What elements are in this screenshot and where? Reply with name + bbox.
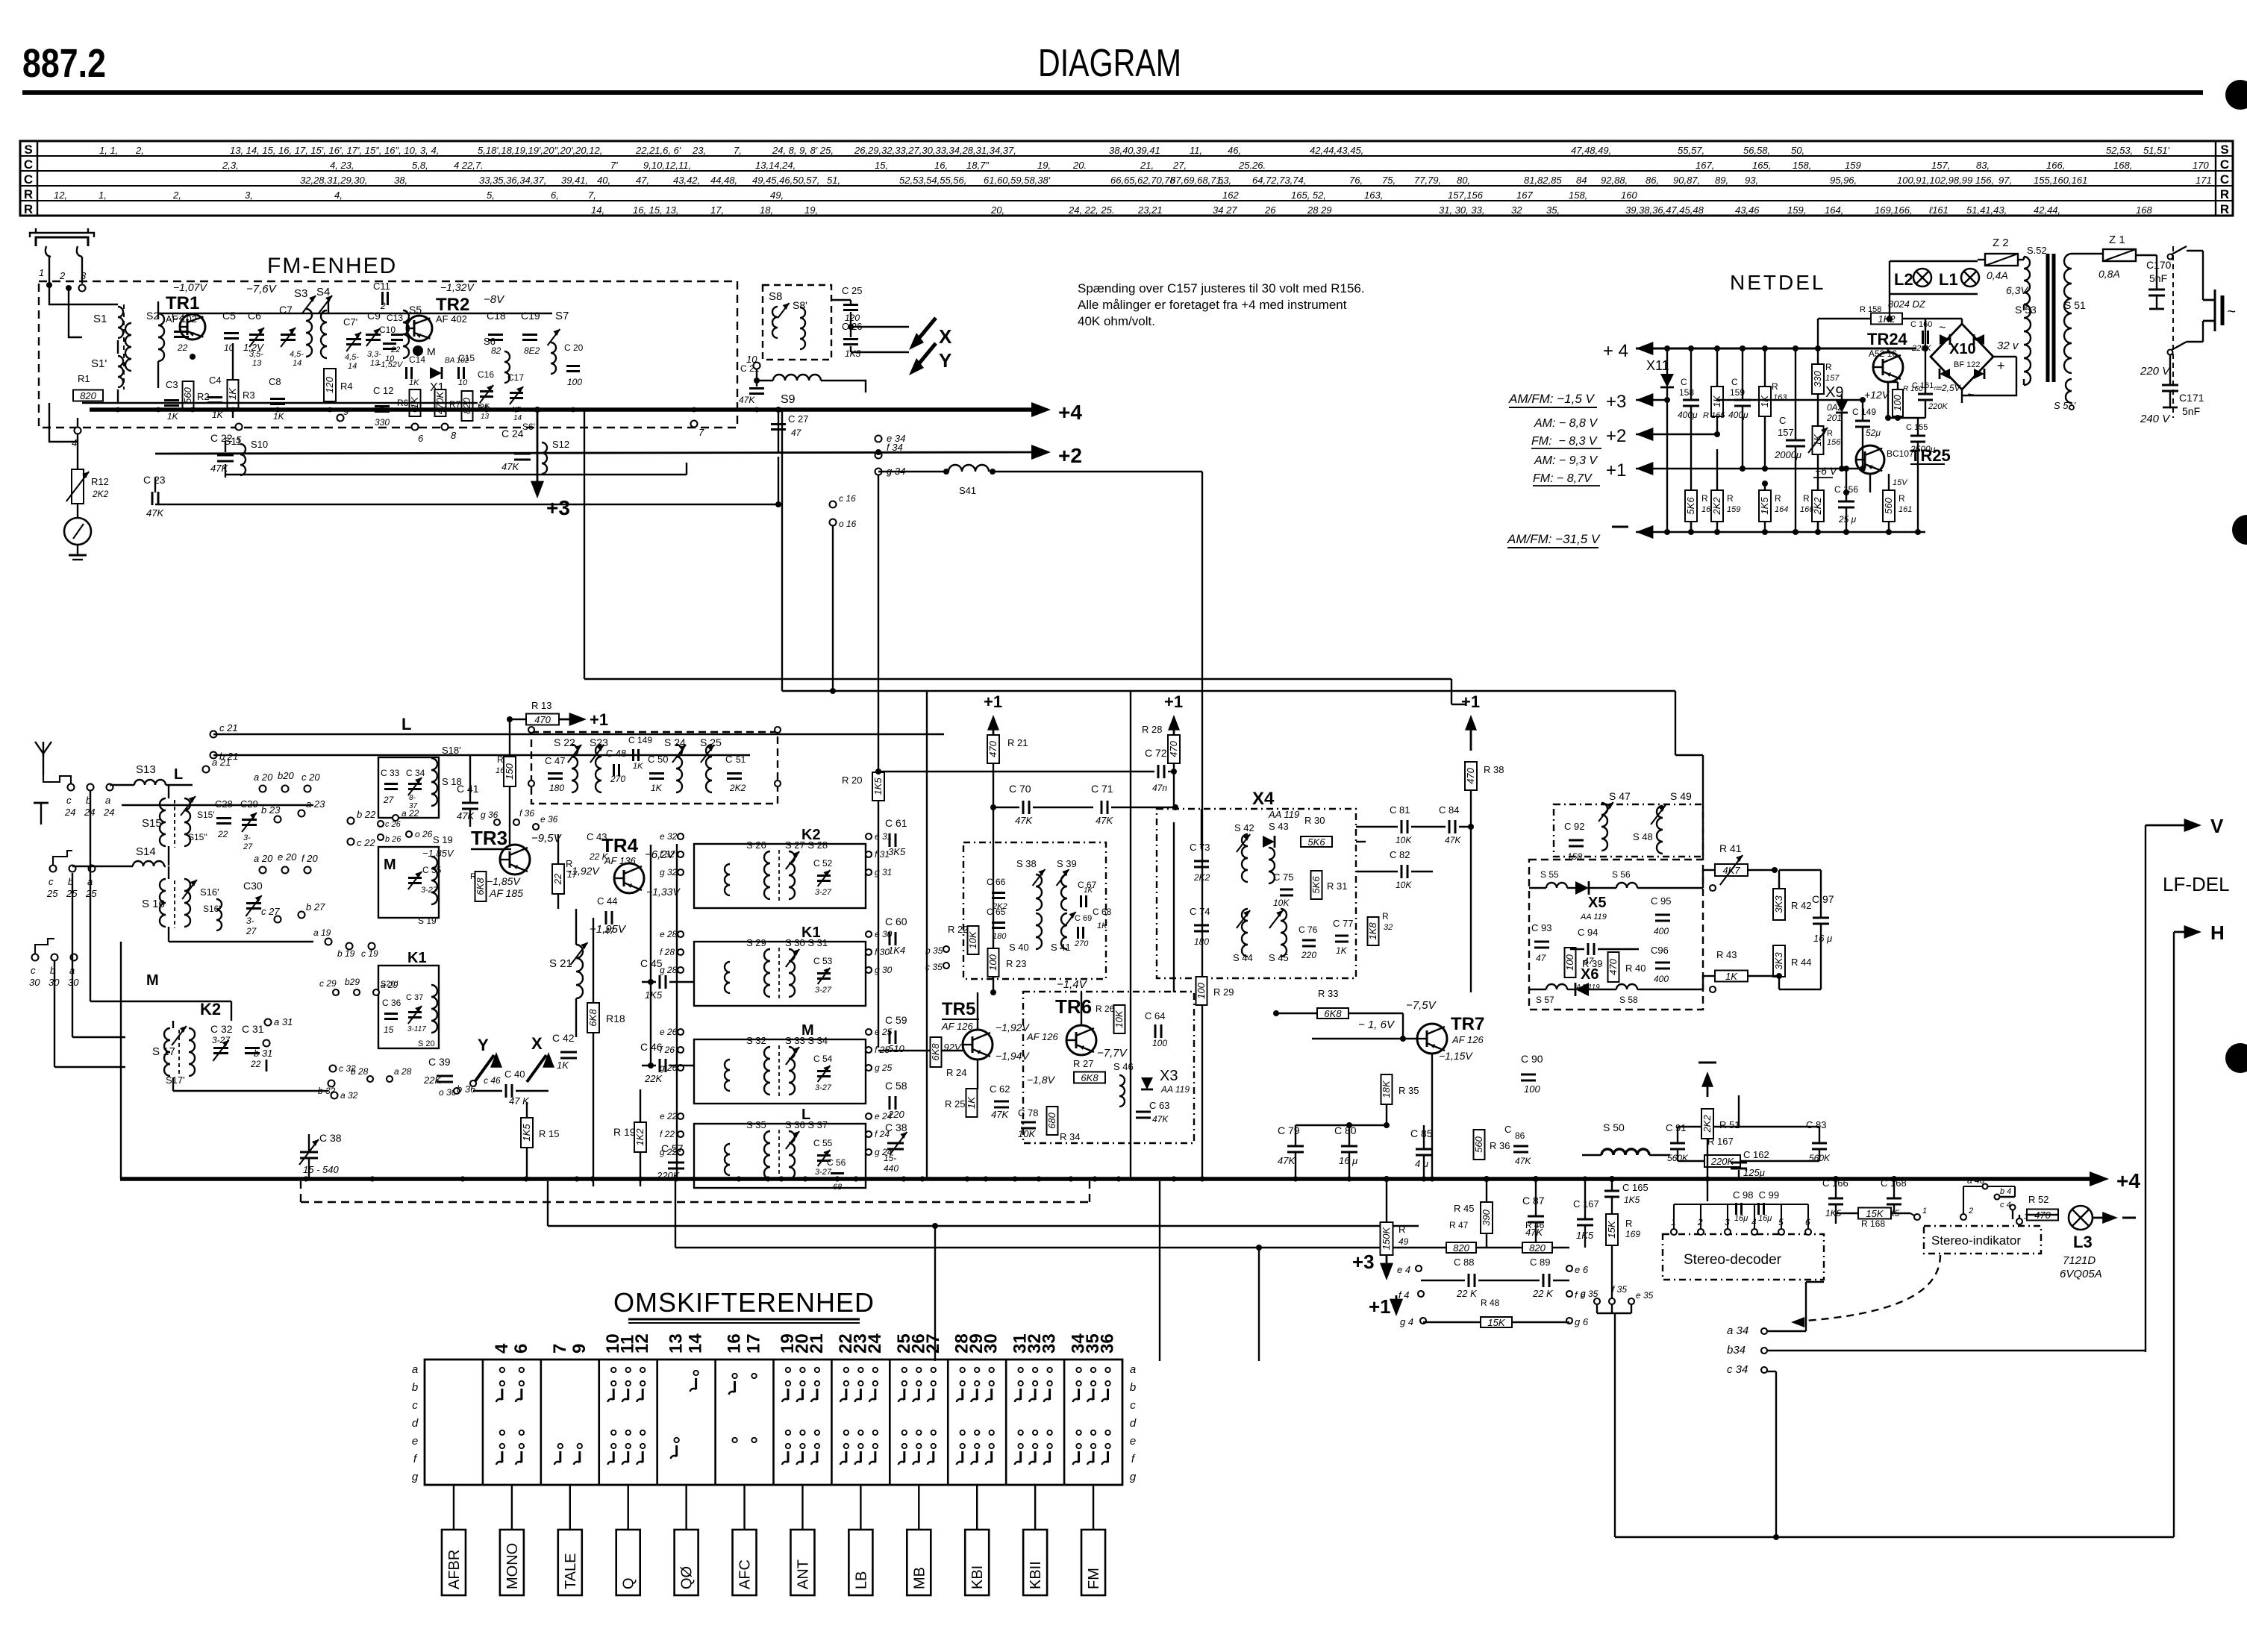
svg-text:e: e	[1130, 1435, 1136, 1448]
svg-text:170: 170	[2193, 160, 2209, 171]
svg-text:2500μ: 2500μ	[1910, 444, 1936, 454]
svg-text:a 29: a 29	[381, 980, 399, 990]
svg-text:S 48: S 48	[1633, 831, 1653, 842]
svg-text:161: 161	[1898, 505, 1912, 514]
svg-text:24: 24	[84, 807, 95, 818]
svg-text:C11: C11	[373, 281, 390, 292]
svg-text:47K: 47K	[1096, 815, 1113, 826]
svg-text:220: 220	[887, 1109, 904, 1120]
svg-text:12,: 12,	[54, 190, 67, 201]
svg-text:1K: 1K	[273, 411, 285, 422]
svg-text:R 35: R 35	[1398, 1085, 1419, 1096]
svg-text:C28: C28	[215, 798, 233, 810]
svg-text:47K: 47K	[739, 395, 755, 405]
svg-text:5K6: 5K6	[1307, 836, 1325, 848]
svg-text:39,41,: 39,41,	[561, 175, 588, 186]
svg-text:100: 100	[1892, 394, 1903, 410]
svg-text:47K: 47K	[146, 507, 164, 519]
svg-text:22K: 22K	[423, 1074, 442, 1086]
svg-text:47: 47	[791, 428, 802, 438]
svg-text:C15: C15	[458, 353, 475, 363]
svg-text:100: 100	[1524, 1083, 1540, 1095]
svg-text:40K ohm/volt.: 40K ohm/volt.	[1078, 314, 1155, 328]
svg-text:164: 164	[1775, 505, 1788, 514]
svg-text:C 82: C 82	[1390, 849, 1410, 860]
svg-text:AFBR: AFBR	[446, 1550, 463, 1589]
svg-text:81,82,85: 81,82,85	[1524, 175, 1562, 186]
svg-text:S 57: S 57	[1536, 995, 1554, 1005]
svg-text:201: 201	[1826, 413, 1842, 423]
svg-text:C 61: C 61	[885, 817, 907, 829]
svg-text:S1': S1'	[91, 357, 107, 370]
svg-text:C 88: C 88	[1454, 1257, 1474, 1268]
svg-text:26,29,32,33,27,30,33,34,28,31,: 26,29,32,33,27,30,33,34,28,31,34,37,	[854, 145, 1016, 156]
svg-text:e 22: e 22	[660, 1111, 678, 1121]
svg-text:S6: S6	[484, 336, 496, 347]
svg-text:6,3V: 6,3V	[2006, 284, 2028, 296]
svg-text:5K6: 5K6	[1685, 497, 1696, 515]
svg-text:TALE: TALE	[563, 1553, 579, 1589]
svg-text:22: 22	[552, 873, 563, 885]
svg-text:19,: 19,	[1037, 160, 1051, 171]
svg-text:157: 157	[1778, 427, 1794, 438]
svg-text:S 33 S 34: S 33 S 34	[785, 1035, 828, 1046]
svg-text:168,: 168,	[2113, 160, 2132, 171]
svg-text:10: 10	[224, 342, 234, 353]
svg-text:3-27: 3-27	[815, 1168, 832, 1177]
svg-text:C 70: C 70	[1009, 783, 1031, 795]
svg-text:g 35: g 35	[1581, 1289, 1598, 1299]
svg-text:b 21: b 21	[219, 751, 238, 762]
svg-text:S6': S6'	[522, 422, 535, 432]
svg-text:3K3: 3K3	[1773, 952, 1784, 970]
svg-text:AF 402: AF 402	[436, 313, 467, 325]
svg-text:g 26: g 26	[660, 1063, 678, 1073]
svg-text:S15'': S15''	[188, 832, 207, 842]
svg-text:34 27: 34 27	[1213, 204, 1237, 216]
svg-text:560: 560	[1883, 497, 1894, 513]
svg-text:b 36: b 36	[457, 1083, 476, 1095]
svg-text:30: 30	[29, 977, 40, 988]
svg-text:4 μ: 4 μ	[1415, 1158, 1428, 1169]
svg-text:C 39: C 39	[428, 1056, 451, 1068]
svg-text:93,: 93,	[1745, 175, 1758, 186]
svg-text:3: 3	[81, 270, 87, 281]
svg-text:23,21: 23,21	[1137, 204, 1163, 216]
svg-text:TR3: TR3	[471, 827, 507, 849]
svg-text:R 29: R 29	[1213, 986, 1234, 998]
svg-text:R 40: R 40	[1625, 963, 1646, 974]
svg-text:27: 27	[243, 842, 253, 851]
svg-text:AA 119: AA 119	[1580, 913, 1607, 922]
svg-text:27,: 27,	[1172, 160, 1187, 171]
svg-text:47,48,49,: 47,48,49,	[1571, 145, 1611, 156]
svg-text:158: 158	[1679, 387, 1694, 398]
svg-text:+: +	[1997, 358, 2005, 373]
svg-text:C30: C30	[243, 880, 263, 892]
svg-text:L: L	[174, 766, 183, 783]
svg-text:32,28,31,29,30,: 32,28,31,29,30,	[300, 175, 367, 186]
svg-text:X: X	[939, 325, 952, 348]
svg-text:R 30: R 30	[1304, 815, 1325, 826]
svg-text:S9: S9	[781, 393, 796, 406]
svg-text:6K8: 6K8	[475, 877, 486, 895]
svg-text:470: 470	[534, 714, 551, 725]
svg-text:8E2: 8E2	[524, 345, 540, 356]
svg-text:g 25: g 25	[875, 1063, 893, 1073]
svg-text:86,: 86,	[1646, 175, 1659, 186]
svg-text:100,91,102,98,99 156,: 100,91,102,98,99 156,	[1897, 175, 1994, 186]
svg-text:27: 27	[923, 1333, 943, 1354]
svg-text:g 31: g 31	[875, 867, 892, 877]
svg-text:13: 13	[481, 413, 490, 421]
svg-text:C 79: C 79	[1278, 1124, 1300, 1136]
svg-text:1K5: 1K5	[1759, 497, 1770, 515]
svg-text:510: 510	[888, 1043, 904, 1054]
svg-text:21,: 21,	[1140, 160, 1154, 171]
svg-text:c: c	[31, 965, 36, 976]
svg-text:1K: 1K	[1725, 971, 1738, 982]
svg-text:C 68: C 68	[1093, 907, 1112, 917]
svg-text:33: 33	[1040, 1333, 1060, 1354]
svg-text:22: 22	[177, 342, 188, 353]
svg-text:a: a	[1130, 1363, 1136, 1376]
svg-text:7: 7	[550, 1344, 570, 1354]
svg-text:C 98 C 99: C 98 C 99	[1733, 1189, 1779, 1201]
svg-text:2: 2	[380, 301, 386, 311]
svg-text:52μ: 52μ	[1866, 428, 1881, 438]
svg-text:92,88,: 92,88,	[1601, 175, 1628, 186]
svg-text:3-27: 3-27	[815, 986, 832, 995]
svg-text:180: 180	[993, 932, 1007, 941]
svg-text:R 165: R 165	[1703, 411, 1725, 420]
svg-text:C 72: C 72	[1145, 747, 1167, 759]
svg-text:2,3,: 2,3,	[222, 160, 239, 171]
svg-text:3-: 3-	[246, 916, 254, 926]
svg-text:4,: 4,	[334, 190, 343, 201]
svg-text:Spænding over C157 justeres ti: Spænding over C157 justeres til 30 volt …	[1078, 281, 1365, 295]
svg-text:8-: 8-	[409, 794, 416, 802]
svg-text:270: 270	[1074, 939, 1089, 948]
svg-text:C8: C8	[269, 376, 281, 387]
svg-text:f 31: f 31	[875, 849, 890, 860]
svg-text:C: C	[24, 157, 33, 172]
svg-text:S41: S41	[959, 485, 976, 496]
svg-text:g 30: g 30	[875, 965, 893, 975]
svg-text:C 80: C 80	[1334, 1124, 1357, 1136]
svg-text:−1,07V: −1,07V	[173, 281, 207, 293]
svg-text:S12: S12	[552, 439, 569, 450]
svg-text:25: 25	[46, 888, 58, 899]
svg-text:g: g	[412, 1471, 419, 1483]
svg-text:R 22: R 22	[948, 924, 968, 935]
svg-text:2K2: 2K2	[729, 783, 746, 793]
svg-text:−1,85V: −1,85V	[422, 848, 454, 859]
svg-text:+1: +1	[1606, 460, 1626, 481]
svg-text:+12V: +12V	[1864, 389, 1890, 401]
svg-text:5nF: 5nF	[2149, 272, 2167, 284]
svg-text:c 20: c 20	[301, 772, 320, 783]
svg-text:51,51′: 51,51′	[2143, 145, 2170, 156]
svg-text:6K8: 6K8	[1081, 1072, 1099, 1083]
svg-text:167,: 167,	[1696, 160, 1714, 171]
svg-text:C 53: C 53	[813, 956, 833, 966]
svg-text:18K: 18K	[1381, 1080, 1392, 1098]
svg-text:13,14,24,: 13,14,24,	[755, 160, 796, 171]
svg-text:164,: 164,	[1825, 204, 1843, 216]
svg-text:47K: 47K	[1015, 815, 1033, 826]
svg-text:a 32: a 32	[340, 1090, 358, 1101]
svg-text:AA 119: AA 119	[1575, 983, 1600, 992]
svg-text:o 26: o 26	[415, 829, 433, 839]
svg-text:100: 100	[1564, 954, 1575, 970]
svg-text:c: c	[1130, 1399, 1136, 1412]
svg-text:27: 27	[246, 926, 257, 936]
svg-text:24: 24	[103, 807, 114, 818]
svg-text:C 12: C 12	[373, 385, 393, 396]
svg-text:f 35: f 35	[1612, 1284, 1627, 1295]
svg-text:R1: R1	[78, 373, 90, 384]
svg-text:b 26: b 26	[385, 835, 401, 844]
svg-text:11,: 11,	[1190, 145, 1202, 156]
svg-text:TR2: TR2	[436, 295, 469, 315]
svg-text:52,53,54,55,56,: 52,53,54,55,56,	[899, 175, 966, 186]
svg-text:47K: 47K	[1152, 1114, 1169, 1124]
svg-text:163,: 163,	[1364, 190, 1383, 201]
svg-text:1,: 1,	[99, 190, 107, 201]
svg-text:S 44: S 44	[1233, 952, 1253, 963]
svg-text:1K2: 1K2	[634, 1128, 646, 1146]
svg-text:AFC: AFC	[737, 1559, 754, 1589]
svg-text:18,: 18,	[760, 204, 773, 216]
svg-text:C 97: C 97	[1812, 893, 1834, 905]
svg-text:e 4: e 4	[1397, 1264, 1410, 1275]
svg-text:−1,92V: −1,92V	[996, 1021, 1030, 1033]
svg-text:C 77: C 77	[1333, 918, 1353, 929]
svg-text:S8: S8	[769, 290, 782, 303]
svg-text:X11: X11	[1646, 358, 1669, 373]
svg-text:R 13: R 13	[531, 700, 551, 711]
svg-text:C 95: C 95	[1651, 895, 1671, 907]
svg-text:a: a	[412, 1363, 418, 1376]
svg-text:77,79,: 77,79,	[1414, 175, 1441, 186]
svg-text:4,5-: 4,5-	[290, 350, 304, 359]
svg-text:g 6: g 6	[1575, 1316, 1589, 1327]
svg-text:C: C	[2220, 157, 2229, 172]
svg-text:AF 185: AF 185	[489, 887, 523, 899]
svg-text:27: 27	[383, 795, 395, 805]
svg-text:X4: X4	[1252, 789, 1275, 809]
svg-text:S15: S15	[142, 817, 162, 830]
svg-text:C 74: C 74	[1190, 906, 1210, 917]
svg-text:66,65,62,70,78: 66,65,62,70,78	[1110, 175, 1176, 186]
svg-text:b 4: b 4	[2000, 1187, 2011, 1196]
svg-text:4: 4	[72, 437, 77, 448]
svg-text:C 65: C 65	[987, 907, 1006, 917]
svg-text:H: H	[2210, 922, 2225, 944]
svg-text:6: 6	[418, 433, 424, 444]
svg-text:AA 119: AA 119	[1268, 809, 1299, 820]
svg-text:R 26: R 26	[1096, 1004, 1115, 1014]
svg-text:24, 22, 25.: 24, 22, 25.	[1068, 204, 1114, 216]
svg-text:−1,94V: −1,94V	[996, 1050, 1030, 1062]
svg-text:17,: 17,	[710, 204, 724, 216]
svg-text:−7,7V: −7,7V	[1097, 1047, 1128, 1060]
svg-text:39,38,36,47,45,48: 39,38,36,47,45,48	[1625, 204, 1704, 216]
svg-text:R: R	[24, 202, 33, 216]
svg-text:165,: 165,	[1752, 160, 1771, 171]
svg-text:S15': S15'	[197, 810, 215, 820]
svg-text:+1: +1	[1164, 692, 1183, 711]
svg-text:C19: C19	[521, 310, 540, 322]
svg-text:16, 15, 13,: 16, 15, 13,	[633, 204, 678, 216]
svg-text:100: 100	[987, 954, 999, 970]
svg-text:1: 1	[39, 267, 44, 278]
svg-text:6K8: 6K8	[930, 1043, 941, 1061]
svg-text:X: X	[531, 1034, 543, 1053]
svg-text:+1: +1	[590, 710, 608, 729]
svg-text:g 4: g 4	[1400, 1316, 1413, 1327]
svg-text:S 51: S 51	[2064, 299, 2086, 311]
svg-text:16: 16	[496, 766, 505, 775]
svg-text:C29: C29	[240, 798, 258, 810]
svg-text:220 V: 220 V	[2140, 365, 2171, 378]
svg-text:Stereo-decoder: Stereo-decoder	[1684, 1252, 1782, 1268]
svg-text:470: 470	[1168, 740, 1179, 757]
svg-text:2,: 2,	[172, 190, 181, 201]
svg-text:C 94: C 94	[1578, 927, 1598, 938]
svg-text:47: 47	[1536, 953, 1547, 963]
svg-text:2K2: 2K2	[1193, 872, 1210, 883]
svg-text:C 60: C 60	[885, 916, 907, 927]
svg-text:22: 22	[250, 1059, 261, 1069]
svg-text:KBII: KBII	[1028, 1561, 1044, 1589]
svg-text:52,53,: 52,53,	[2106, 145, 2133, 156]
svg-text:L3: L3	[2073, 1233, 2093, 1251]
svg-text:R 51: R 51	[1719, 1119, 1740, 1130]
svg-text:330: 330	[1812, 370, 1823, 387]
svg-text:R: R	[2220, 187, 2229, 201]
svg-text:C 87: C 87	[1522, 1195, 1545, 1207]
svg-text:C170: C170	[2146, 259, 2172, 271]
svg-text:d: d	[412, 1417, 419, 1430]
svg-text:157: 157	[1825, 374, 1840, 383]
svg-text:R 27: R 27	[1073, 1058, 1093, 1069]
svg-text:S18': S18'	[442, 745, 461, 756]
svg-text:R 47: R 47	[1449, 1220, 1469, 1230]
svg-text:AF 126: AF 126	[1451, 1034, 1484, 1045]
svg-text:21: 21	[807, 1333, 827, 1354]
svg-text:14,: 14,	[591, 204, 604, 216]
svg-text:−1,52V: −1,52V	[376, 360, 404, 369]
svg-text:C 52: C 52	[813, 858, 833, 869]
svg-text:43,42,: 43,42,	[673, 175, 700, 186]
svg-text:C 162: C 162	[1743, 1149, 1769, 1160]
svg-text:C18: C18	[487, 310, 506, 322]
svg-text:e 35: e 35	[1636, 1290, 1654, 1301]
svg-text:R 24: R 24	[946, 1067, 966, 1078]
svg-text:R: R	[1772, 381, 1778, 392]
svg-text:e 32: e 32	[660, 831, 678, 842]
svg-text:R: R	[24, 187, 33, 201]
svg-text:13: 13	[252, 359, 262, 368]
svg-text:TR7: TR7	[1451, 1014, 1484, 1034]
svg-text:C 43: C 43	[587, 831, 607, 842]
svg-text:16: 16	[725, 1333, 745, 1354]
svg-text:3,3-: 3,3-	[367, 350, 381, 359]
svg-text:14: 14	[513, 414, 522, 422]
svg-text:22: 22	[217, 829, 228, 839]
svg-text:86: 86	[1515, 1130, 1525, 1141]
svg-text:a 20: a 20	[254, 772, 273, 783]
svg-text:c 22: c 22	[357, 837, 375, 848]
svg-text:C 57: C 57	[661, 1142, 684, 1154]
svg-text:125μ: 125μ	[1743, 1167, 1765, 1178]
svg-text:7′: 7′	[610, 160, 618, 171]
svg-text:S4: S4	[316, 286, 330, 298]
svg-text:68: 68	[833, 1183, 843, 1192]
svg-text:100: 100	[1196, 982, 1207, 998]
svg-text:C10: C10	[379, 325, 396, 335]
svg-text:S 58: S 58	[1619, 995, 1638, 1005]
svg-text:f 28: f 28	[660, 947, 675, 957]
svg-text:24: 24	[64, 807, 75, 818]
svg-text:C 90: C 90	[1521, 1053, 1543, 1065]
svg-text:C 167: C 167	[1573, 1198, 1599, 1210]
svg-text:K2: K2	[200, 1000, 221, 1019]
svg-text:3-27: 3-27	[815, 888, 832, 897]
svg-text:f 20: f 20	[301, 853, 318, 864]
svg-text:C7': C7'	[343, 316, 357, 328]
svg-text:15K: 15K	[1866, 1208, 1884, 1219]
svg-text:R 23: R 23	[1006, 958, 1026, 969]
svg-text:MB: MB	[911, 1567, 928, 1589]
svg-text:820: 820	[1529, 1242, 1546, 1254]
svg-text:−1,15V: −1,15V	[1439, 1050, 1473, 1062]
svg-text:4 22,7.: 4 22,7.	[454, 160, 484, 171]
svg-text:R 158: R 158	[1860, 305, 1881, 314]
svg-text:FM: − 8,7V: FM: − 8,7V	[1533, 472, 1593, 485]
svg-text:c 46: c 46	[484, 1075, 501, 1086]
svg-text:1K: 1K	[409, 378, 419, 387]
svg-text:32: 32	[1384, 923, 1393, 932]
svg-text:1K5: 1K5	[872, 777, 884, 795]
svg-text:R 43: R 43	[1716, 949, 1737, 960]
svg-text:R 44: R 44	[1791, 957, 1811, 968]
svg-text:MONO: MONO	[504, 1543, 521, 1589]
svg-text:+3: +3	[1606, 392, 1626, 412]
svg-text:f 4: f 4	[1398, 1289, 1409, 1301]
svg-text:400: 400	[1654, 974, 1669, 984]
svg-text:AF 126: AF 126	[1026, 1031, 1058, 1042]
svg-text:470: 470	[987, 740, 999, 757]
svg-text:3K5: 3K5	[888, 846, 906, 857]
svg-text:FM-ENHED: FM-ENHED	[267, 254, 397, 278]
svg-text:Z 2: Z 2	[1993, 237, 2009, 249]
svg-text:S 36 S 37: S 36 S 37	[785, 1119, 828, 1130]
svg-text:S: S	[2220, 143, 2228, 157]
svg-text:S: S	[24, 143, 32, 157]
svg-text:C171: C171	[2179, 392, 2204, 404]
svg-text:0,8A: 0,8A	[2098, 268, 2120, 280]
svg-text:470: 470	[1607, 958, 1619, 974]
svg-text:C 20: C 20	[564, 342, 584, 353]
svg-text:14: 14	[348, 362, 357, 371]
svg-text:C 155: C 155	[1906, 423, 1928, 432]
svg-text:R: R	[1625, 1218, 1632, 1229]
svg-text:89,: 89,	[1715, 175, 1728, 186]
svg-text:C 93: C 93	[1531, 922, 1551, 933]
